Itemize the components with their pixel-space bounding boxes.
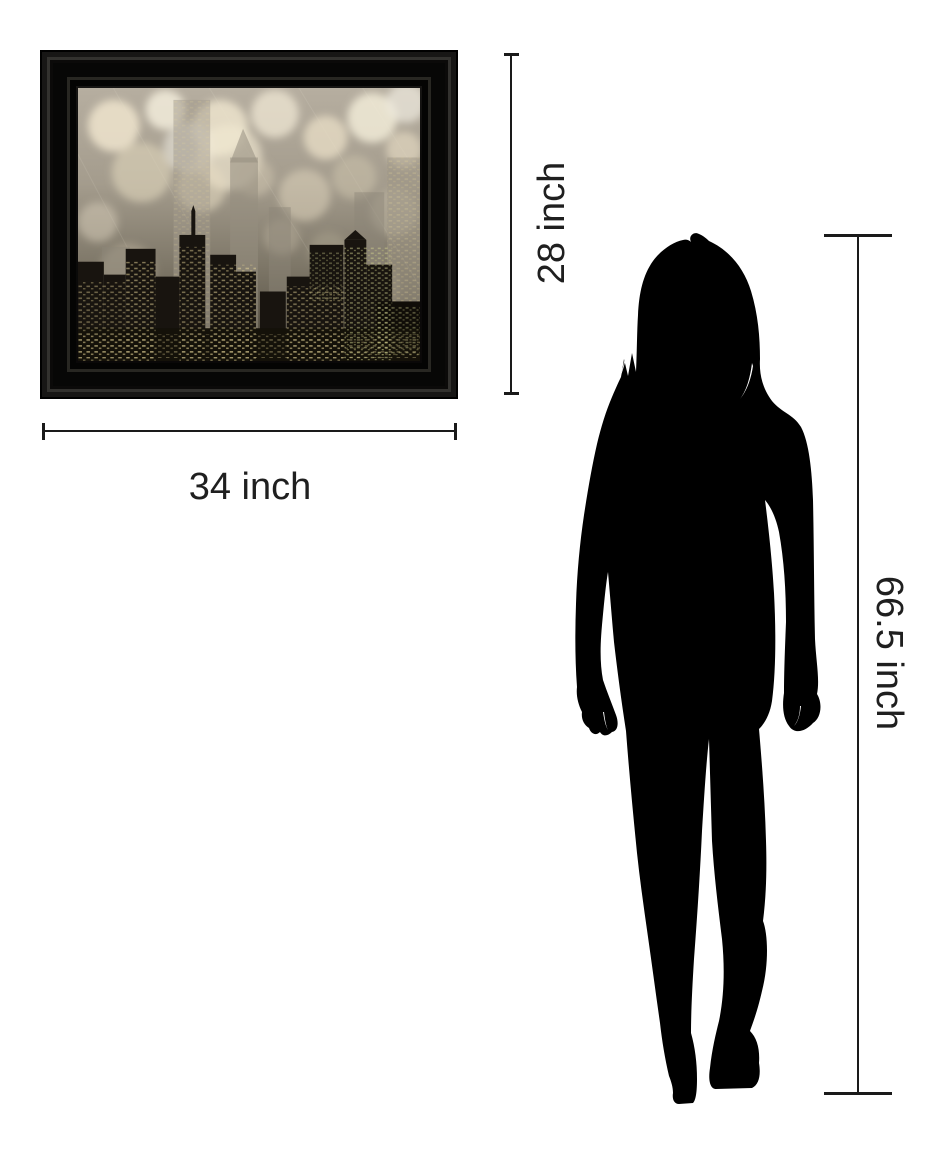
- dimension-end-cap: [42, 423, 45, 440]
- width-dimension-label: 34 inch: [130, 465, 370, 509]
- person-height-dimension-label: 66.5 inch: [867, 533, 911, 773]
- person-height-dimension-line: [857, 234, 859, 1095]
- width-dimension-line: [42, 430, 457, 432]
- city-skyline-bokeh-art: [78, 88, 420, 361]
- dimension-end-cap: [504, 53, 519, 56]
- dimension-end-cap: [824, 1092, 892, 1095]
- artwork-image: [78, 88, 420, 361]
- height-dimension-line: [510, 53, 512, 395]
- dimension-end-cap: [824, 234, 892, 237]
- dimension-end-cap: [454, 423, 457, 440]
- framed-artwork: [40, 50, 458, 399]
- woman-silhouette: [563, 232, 848, 1107]
- size-guide-canvas: 34 inch 28 inch 66.5 inch: [0, 0, 950, 1158]
- woman-silhouette-figure: [563, 232, 848, 1107]
- dimension-end-cap: [504, 392, 519, 395]
- woman-silhouette-body: [575, 233, 820, 1104]
